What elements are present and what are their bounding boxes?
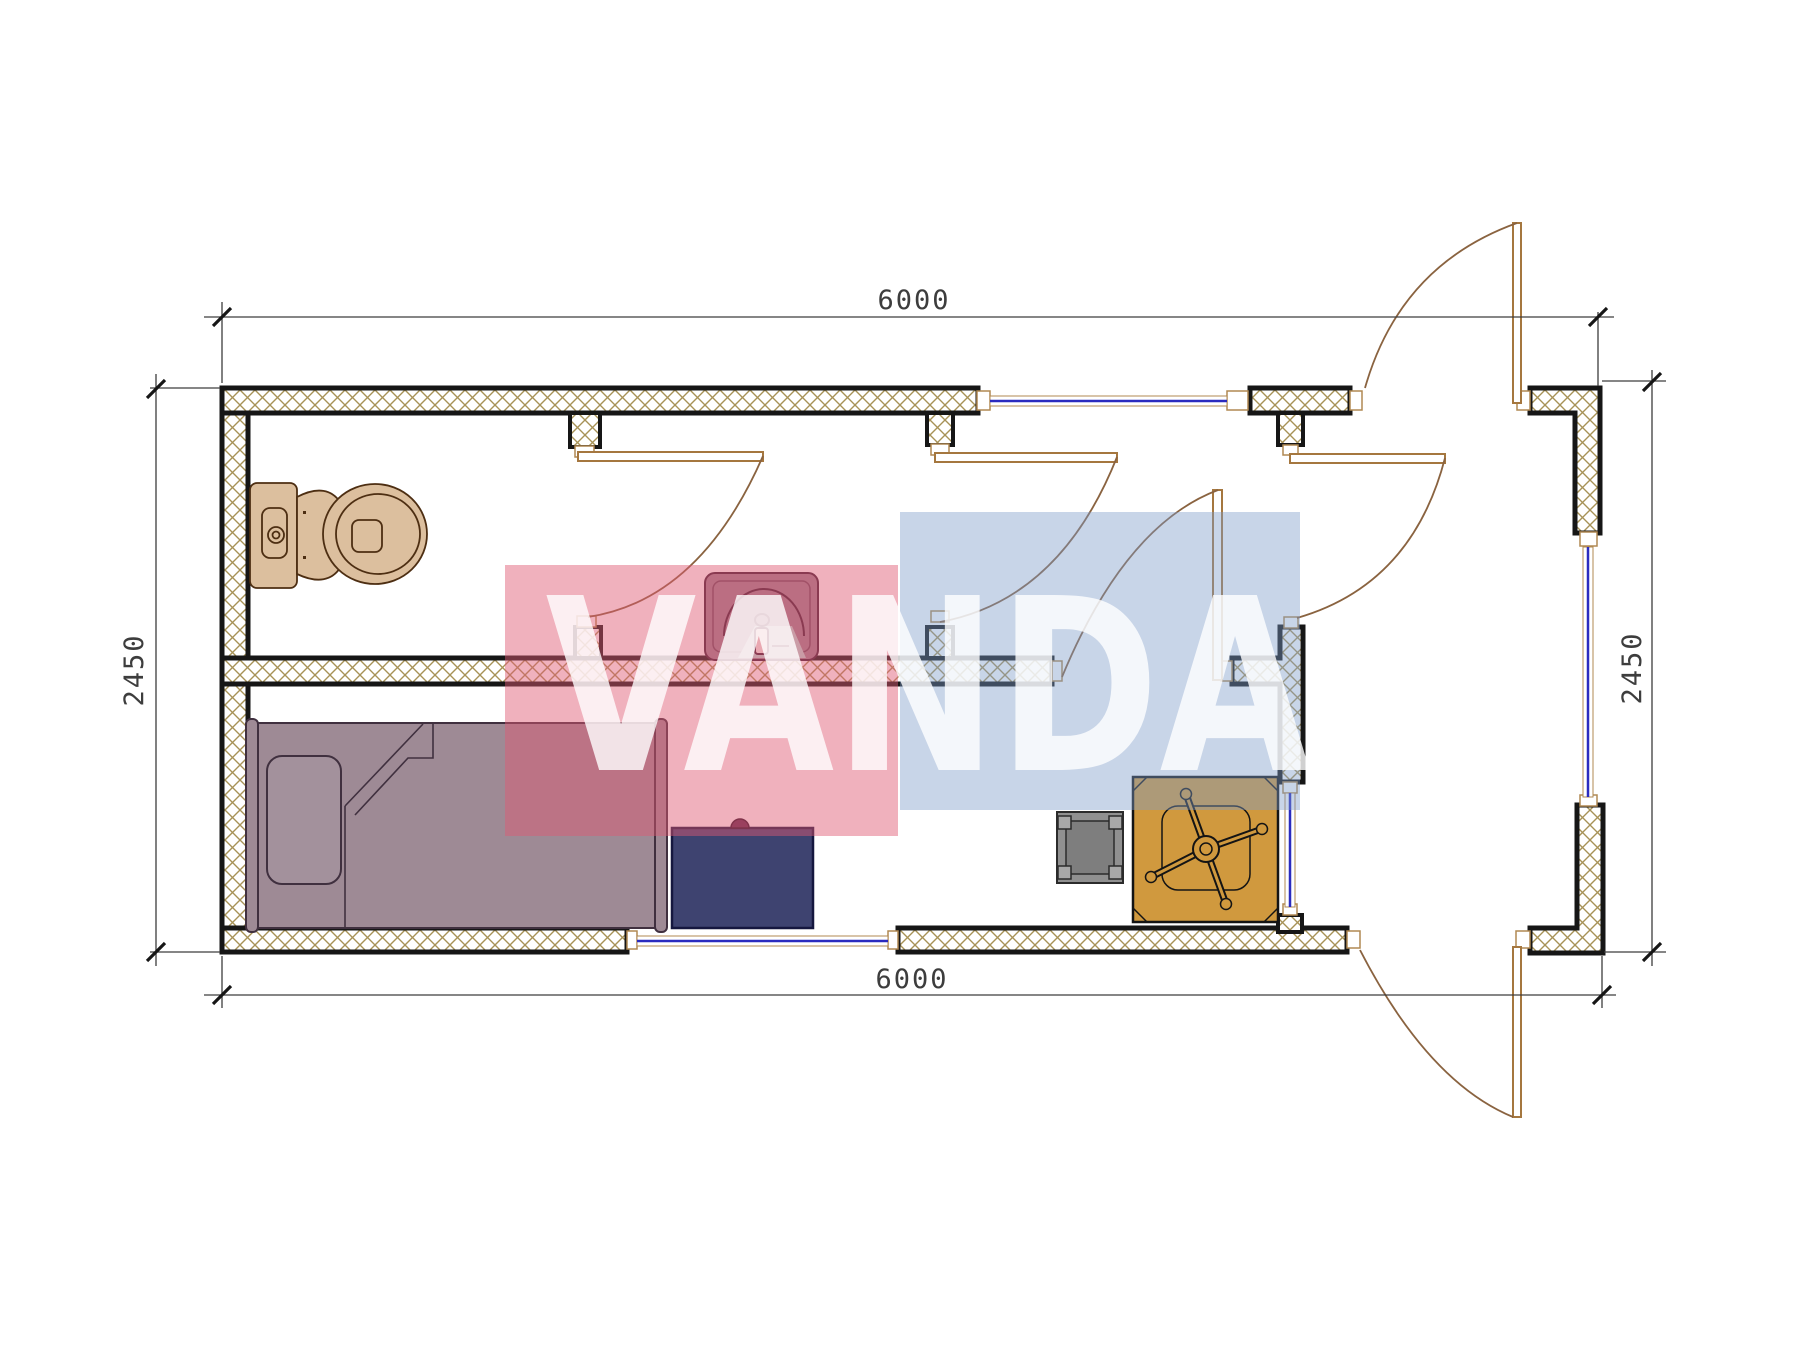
door-arc-entry-bottom [1360, 950, 1513, 1117]
wall-stub-shower-door-top [927, 413, 953, 445]
dimension-label-right: 2450 [1617, 631, 1648, 704]
wall-top-segment-2 [1250, 388, 1350, 413]
door-leaf-entry-bottom [1513, 947, 1521, 1117]
wall-bottom-right-corner [1530, 805, 1603, 953]
toilet [250, 483, 427, 588]
door-leaf-toilet [578, 452, 763, 461]
window-right [1583, 547, 1593, 797]
watermark-text: VANDA [546, 547, 1311, 827]
wall-stub-toilet-door-top [570, 413, 600, 447]
bed-pillow [267, 756, 341, 884]
wall-top-segment-1 [222, 388, 978, 413]
bed-headboard [246, 719, 258, 932]
toilet-bowl [323, 484, 427, 584]
door-leaf-shower [935, 453, 1117, 462]
door-leaf-room [1290, 454, 1445, 463]
wall-stub-hall-door-top [1278, 413, 1303, 445]
window-bottom [637, 936, 888, 946]
toilet-flush-button [268, 527, 284, 543]
wall-stub-bottom-window [1278, 915, 1302, 932]
window-top [990, 396, 1227, 406]
wall-top-right-corner [1530, 388, 1600, 533]
floor-plan-canvas: 6000 6000 2450 2450 VANDA [0, 0, 1800, 1350]
door-arc-entry-top [1365, 223, 1517, 388]
dimension-label-bottom: 6000 [875, 964, 948, 995]
door-arc-room [1297, 458, 1445, 618]
wall-bottom-segment-1 [222, 928, 627, 952]
door-leaf-entry-top [1513, 223, 1521, 403]
dimension-label-left: 2450 [119, 633, 150, 706]
floor-plan-drawing: 6000 6000 2450 2450 VANDA [0, 0, 1800, 1350]
watermark: VANDA [505, 512, 1311, 836]
dimension-label-top: 6000 [877, 285, 950, 316]
